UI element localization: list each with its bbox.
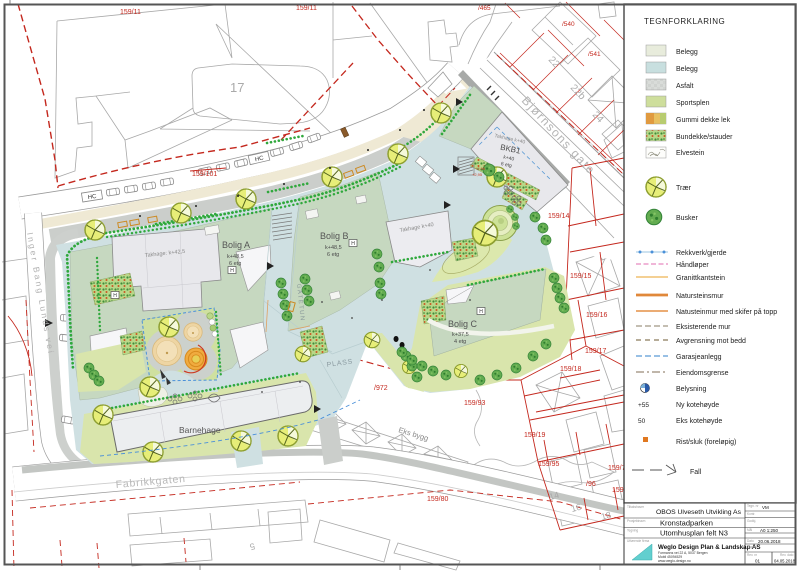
svg-text:Granittkantstein: Granittkantstein: [676, 275, 725, 282]
svg-text:H: H: [351, 241, 355, 247]
svg-text:159/16: 159/16: [586, 312, 608, 319]
svg-text:Natursteinsmur: Natursteinsmur: [676, 293, 724, 300]
svg-text:Avgrensning mot bedd: Avgrensning mot bedd: [676, 338, 746, 345]
svg-text:VM: VM: [762, 505, 769, 510]
svg-text:Håndløper: Håndløper: [676, 261, 709, 269]
svg-text:+2,96: +2,96: [475, 166, 486, 171]
svg-text:Rist/sluk (foreløpig): Rist/sluk (foreløpig): [676, 439, 736, 446]
svg-text:Elvestein: Elvestein: [676, 150, 705, 157]
svg-text:159/17: 159/17: [585, 348, 607, 355]
svg-text:Garasjeanlegg: Garasjeanlegg: [676, 354, 722, 361]
svg-text:+2,95: +2,95: [472, 172, 483, 177]
svg-text:A0 1:250: A0 1:250: [760, 528, 779, 533]
svg-text:/972: /972: [374, 385, 388, 392]
svg-text:Tiltakshaver: Tiltakshaver: [627, 505, 645, 509]
svg-text:Tegnet: Tegnet: [747, 545, 757, 549]
svg-text:Fall: Fall: [690, 469, 702, 476]
svg-text:Tegn. nr: Tegn. nr: [747, 504, 759, 508]
svg-text:50: 50: [638, 418, 646, 425]
svg-text:Asfalt: Asfalt: [676, 83, 694, 90]
svg-text:159/93: 159/93: [464, 400, 486, 407]
svg-text:Rev. nr: Rev. nr: [747, 553, 758, 557]
svg-text:Prosjektnavn: Prosjektnavn: [627, 519, 646, 523]
svg-text:Utførende firma: Utførende firma: [627, 539, 649, 543]
svg-text:H: H: [479, 309, 483, 315]
svg-text:www.weglo-design.no: www.weglo-design.no: [658, 559, 691, 563]
svg-text:Trær: Trær: [676, 185, 692, 192]
svg-text:Bolig B: Bolig B: [320, 231, 349, 241]
svg-text:Bolig C: Bolig C: [448, 319, 478, 329]
svg-text:159/7: 159/7: [608, 465, 626, 472]
svg-text:159/95: 159/95: [538, 461, 560, 468]
svg-text:04.05.2018: 04.05.2018: [774, 559, 796, 564]
svg-text:159/101: 159/101: [192, 171, 217, 178]
svg-text:20.06.2018: 20.06.2018: [758, 539, 781, 544]
svg-text:H: H: [113, 293, 117, 299]
svg-text:6 etg: 6 etg: [327, 252, 339, 258]
svg-text:+55: +55: [638, 402, 649, 409]
svg-text:Utomhusplan felt N3: Utomhusplan felt N3: [660, 529, 728, 538]
svg-text:Busker: Busker: [676, 215, 698, 222]
svg-text:159/80: 159/80: [427, 496, 449, 503]
svg-text:6 etg: 6 etg: [229, 261, 241, 267]
svg-text:TEGNFORKLARING: TEGNFORKLARING: [644, 17, 725, 26]
svg-text:01: 01: [755, 559, 761, 564]
svg-text:Weglo Design Plan & Landskap A: Weglo Design Plan & Landskap AS: [658, 544, 760, 551]
svg-text:Barnehage: Barnehage: [179, 425, 221, 435]
svg-text:Sportsplen: Sportsplen: [676, 100, 710, 107]
svg-text:4 etg: 4 etg: [454, 339, 466, 345]
svg-text:/465: /465: [478, 5, 491, 12]
svg-text:159/14: 159/14: [548, 213, 570, 220]
svg-text:Ny kotehøyde: Ny kotehøyde: [676, 402, 719, 409]
svg-text:Tegning: Tegning: [627, 529, 638, 533]
svg-text:159/18: 159/18: [560, 366, 582, 373]
svg-text:159/11: 159/11: [120, 9, 141, 16]
svg-text:Mål: Mål: [747, 528, 752, 532]
svg-text:Eksisterende mur: Eksisterende mur: [676, 324, 731, 331]
svg-text:159/15: 159/15: [570, 273, 592, 280]
svg-text:Eks kotehøyde: Eks kotehøyde: [676, 418, 722, 425]
svg-text:Bundekke/stauder: Bundekke/stauder: [676, 134, 733, 141]
svg-text:k+48,5: k+48,5: [325, 245, 342, 251]
svg-text:Dato: Dato: [747, 539, 754, 543]
svg-text:k+48,5: k+48,5: [227, 254, 244, 260]
svg-text:Rev. dato: Rev. dato: [780, 553, 794, 557]
svg-text:Kronstadparken: Kronstadparken: [660, 519, 713, 528]
svg-text:H: H: [230, 268, 234, 274]
svg-text:/541: /541: [588, 51, 601, 58]
svg-text:/540: /540: [562, 21, 575, 28]
svg-text:Natusteinmur med skifer på top: Natusteinmur med skifer på topp: [676, 308, 777, 316]
svg-text:Belegg: Belegg: [676, 66, 698, 73]
svg-text:Belysning: Belysning: [676, 386, 706, 393]
svg-text:Rekkverk/gjerde: Rekkverk/gjerde: [676, 250, 727, 257]
svg-text:Eiendomsgrense: Eiendomsgrense: [676, 370, 729, 377]
svg-text:Bolig A: Bolig A: [222, 240, 250, 250]
svg-text:17: 17: [230, 80, 244, 95]
svg-text:Kontr.: Kontr.: [747, 512, 756, 516]
svg-text:k+37,5: k+37,5: [452, 332, 469, 338]
svg-text:159/19: 159/19: [524, 432, 546, 439]
svg-text:Belegg: Belegg: [676, 49, 698, 56]
svg-text:/96: /96: [586, 481, 596, 488]
svg-text:Godkj.: Godkj.: [747, 519, 756, 523]
svg-text:159/11: 159/11: [296, 5, 317, 12]
svg-text:OBOS Ulveseth Utvikling As: OBOS Ulveseth Utvikling As: [656, 509, 742, 516]
svg-text:Gummi dekke lek: Gummi dekke lek: [676, 117, 731, 124]
